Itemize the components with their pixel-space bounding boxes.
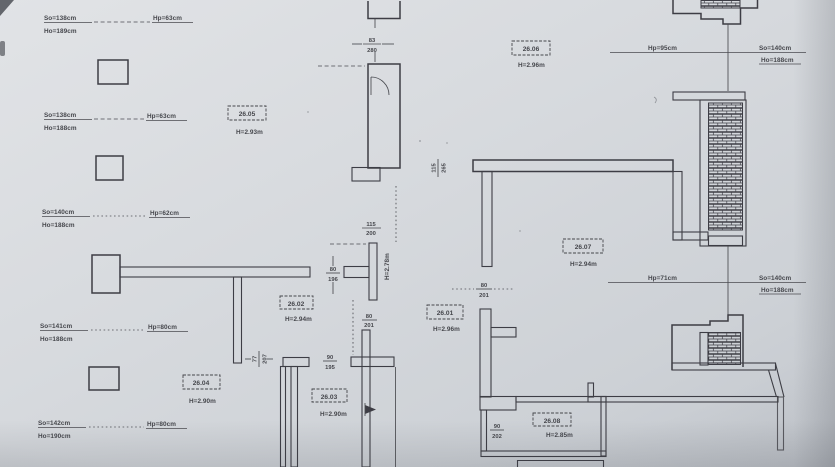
shaft-left-wall <box>700 333 708 366</box>
wall-end-hook <box>588 383 594 397</box>
pen-squiggle <box>654 97 656 103</box>
left-walls <box>120 267 310 467</box>
wall-left <box>481 410 487 451</box>
brick-shaft-top <box>701 1 740 9</box>
corridor-bottom-wall <box>588 397 778 403</box>
shaft-bottom-cap <box>709 236 743 246</box>
photo-artifacts <box>0 0 656 232</box>
opening-height: 265 <box>442 162 448 172</box>
wall-left <box>673 172 682 241</box>
right-center-walls <box>473 160 673 410</box>
brick-shaft-main <box>709 103 743 230</box>
window-sill-width: So=140cm <box>759 45 791 52</box>
opening-width: 115 <box>432 163 438 173</box>
room-2608-walls <box>481 397 606 467</box>
wall-diagonal <box>769 370 777 397</box>
window-parapet-height: Hp=71cm <box>648 275 677 282</box>
window-head-height: Ho=189cm <box>44 28 77 35</box>
wall-bottom <box>481 451 606 457</box>
height-note-text: H=2.78m <box>384 253 391 280</box>
opening-width: 80 <box>330 267 336 273</box>
room-label-2604: 26.04 H=2.90m <box>183 375 220 405</box>
window-head-height: Ho=188cm <box>40 336 73 343</box>
window-head-height: Ho=188cm <box>44 125 77 132</box>
room-height: H=2.96m <box>433 326 460 333</box>
opening-width: 77 <box>253 356 259 362</box>
opening-height: 200 <box>366 231 376 237</box>
window-annotation-5: So=142cm Ho=190cm Hp=80cm <box>38 420 187 440</box>
wall-long-horizontal <box>473 160 673 172</box>
window-sill-width: So=142cm <box>38 420 70 427</box>
opening-dim-77-207: 77 207 <box>245 351 273 367</box>
corner-smudge <box>0 0 14 16</box>
window-parapet-height: Hp=80cm <box>148 324 177 331</box>
column <box>89 367 119 390</box>
opening-height: 280 <box>367 48 377 54</box>
window-parapet-height: Hp=63cm <box>147 113 176 120</box>
window-annotation-2: So=138cm Ho=188cm Hp=63cm <box>44 112 187 132</box>
opening-width: 80 <box>366 314 372 320</box>
room-label-2606: 26.06 H=2.96m <box>512 41 550 69</box>
wall-stub <box>491 328 516 338</box>
wall-stem <box>482 172 492 267</box>
floor-plan-photo: So=138cm Ho=189cm Hp=63cm So=138cm Ho=18… <box>0 0 835 467</box>
wall-lower-room <box>518 461 604 467</box>
room-label-2601: 26.01 H=2.96m <box>427 305 463 333</box>
opening-dim-80-201-right: 80 201 <box>452 283 514 299</box>
room-number: 26.08 <box>544 418 561 425</box>
window-annotation-7: Hp=71cm So=140cm Ho=188cm <box>608 275 806 294</box>
room-height: H=2.93m <box>236 129 263 136</box>
opening-width: 115 <box>366 222 376 228</box>
column <box>98 60 128 84</box>
column <box>96 156 123 180</box>
floor-plan-drawing: So=138cm Ho=189cm Hp=63cm So=138cm Ho=18… <box>0 0 835 467</box>
wall-vertical <box>480 309 491 397</box>
wall-cross-bar <box>351 357 394 367</box>
room-height: H=2.90m <box>189 398 216 405</box>
room-height: H=2.94m <box>285 316 312 323</box>
room-number: 26.02 <box>288 301 305 308</box>
window-annotation-4: So=141cm Ho=188cm Hp=80cm <box>40 323 188 343</box>
wall-top-recess <box>368 1 400 19</box>
wall-foot <box>480 397 516 411</box>
window-sill-width: So=140cm <box>759 275 791 282</box>
window-parapet-height: Hp=95cm <box>648 45 677 52</box>
window-head-height: Ho=188cm <box>761 57 794 64</box>
opening-dim-83-280: 83 280 <box>352 38 394 54</box>
wall-bottom-bar <box>673 232 708 240</box>
window-annotation-1: So=138cm Ho=189cm Hp=63cm <box>44 15 193 35</box>
opening-height: 196 <box>328 277 338 283</box>
opening-dim-90-202: 90 202 <box>490 424 504 440</box>
opening-height: 207 <box>263 354 269 364</box>
room-label-2608: 26.08 H=2.85m <box>533 413 573 439</box>
wall-foot <box>352 168 380 182</box>
window-parapet-height: Hp=62cm <box>150 210 179 217</box>
room-label-2605: 26.05 H=2.93m <box>228 106 266 136</box>
wall-t-bar <box>283 358 309 367</box>
room-height: H=2.90m <box>320 411 347 418</box>
room-number: 26.05 <box>239 111 256 118</box>
room-height: H=2.94m <box>570 261 597 268</box>
wall-vertical <box>234 277 242 363</box>
window-parapet-height: Hp=63cm <box>153 15 182 22</box>
wall-jog <box>344 267 369 278</box>
window-parapet-height: Hp=80cm <box>147 421 176 428</box>
speck <box>307 111 309 113</box>
opening-width: 80 <box>481 283 487 289</box>
window-sill-width: So=138cm <box>44 15 76 22</box>
wall-top-bar <box>673 92 745 100</box>
wall-vertical <box>362 330 370 467</box>
room-number: 26.01 <box>437 310 454 317</box>
window-annotation-3: So=140cm Ho=188cm Hp=62cm <box>42 209 190 229</box>
opening-height: 201 <box>364 323 374 329</box>
window-annotation-6: Hp=95cm So=140cm Ho=188cm <box>610 45 806 64</box>
room-number: 26.03 <box>321 394 338 401</box>
room-height: H=2.96m <box>518 62 545 69</box>
door-swing-arc <box>371 77 389 95</box>
opening-dim-80-196: 80 196 <box>326 256 340 294</box>
window-sill-width: So=138cm <box>44 112 76 119</box>
opening-height: 195 <box>325 365 335 371</box>
brick-shaft-lower <box>708 333 741 365</box>
window-head-height: Ho=188cm <box>761 287 794 294</box>
opening-height: 201 <box>479 293 489 299</box>
wall-column <box>368 64 400 168</box>
opening-width: 83 <box>369 38 376 44</box>
left-columns <box>89 60 128 390</box>
speck <box>519 230 521 232</box>
column <box>92 255 120 293</box>
opening-width: 90 <box>327 355 333 361</box>
wall-horizontal <box>120 267 310 277</box>
room-number: 26.04 <box>193 380 210 387</box>
wall-diagonal <box>776 364 785 398</box>
room-number: 26.07 <box>575 244 592 251</box>
opening-dim-115-265: 115 265 <box>432 159 448 177</box>
room-height: H=2.85m <box>546 432 573 439</box>
opening-dim-80-201-center: 80 201 <box>362 314 377 329</box>
room-label-2602: 26.02 H=2.94m <box>280 296 313 323</box>
room-label-2607: 26.07 H=2.94m <box>563 239 603 268</box>
wall-right-vertical <box>778 397 784 450</box>
opening-dim-90-195: 90 195 <box>323 355 337 371</box>
room-label-2603: 26.03 H=2.90m <box>312 389 347 418</box>
wall-right <box>601 397 606 457</box>
right-structures <box>588 0 784 450</box>
opening-dim-115-200: 115 200 <box>362 222 381 237</box>
window-head-height: Ho=190cm <box>38 433 71 440</box>
opening-height: 202 <box>492 434 502 440</box>
window-head-height: Ho=188cm <box>42 222 75 229</box>
opening-width: 90 <box>494 424 500 430</box>
window-sill-width: So=140cm <box>42 209 74 216</box>
window-sill-width: So=141cm <box>40 323 72 330</box>
wall-vertical <box>291 367 298 467</box>
room-number: 26.06 <box>523 46 540 53</box>
speck <box>419 140 421 142</box>
speck <box>446 142 448 144</box>
wall-vertical <box>369 243 377 300</box>
wall-vertical <box>281 367 286 467</box>
corridor-height-note: H=2.78m <box>384 253 391 280</box>
edge-smudge <box>0 41 5 56</box>
